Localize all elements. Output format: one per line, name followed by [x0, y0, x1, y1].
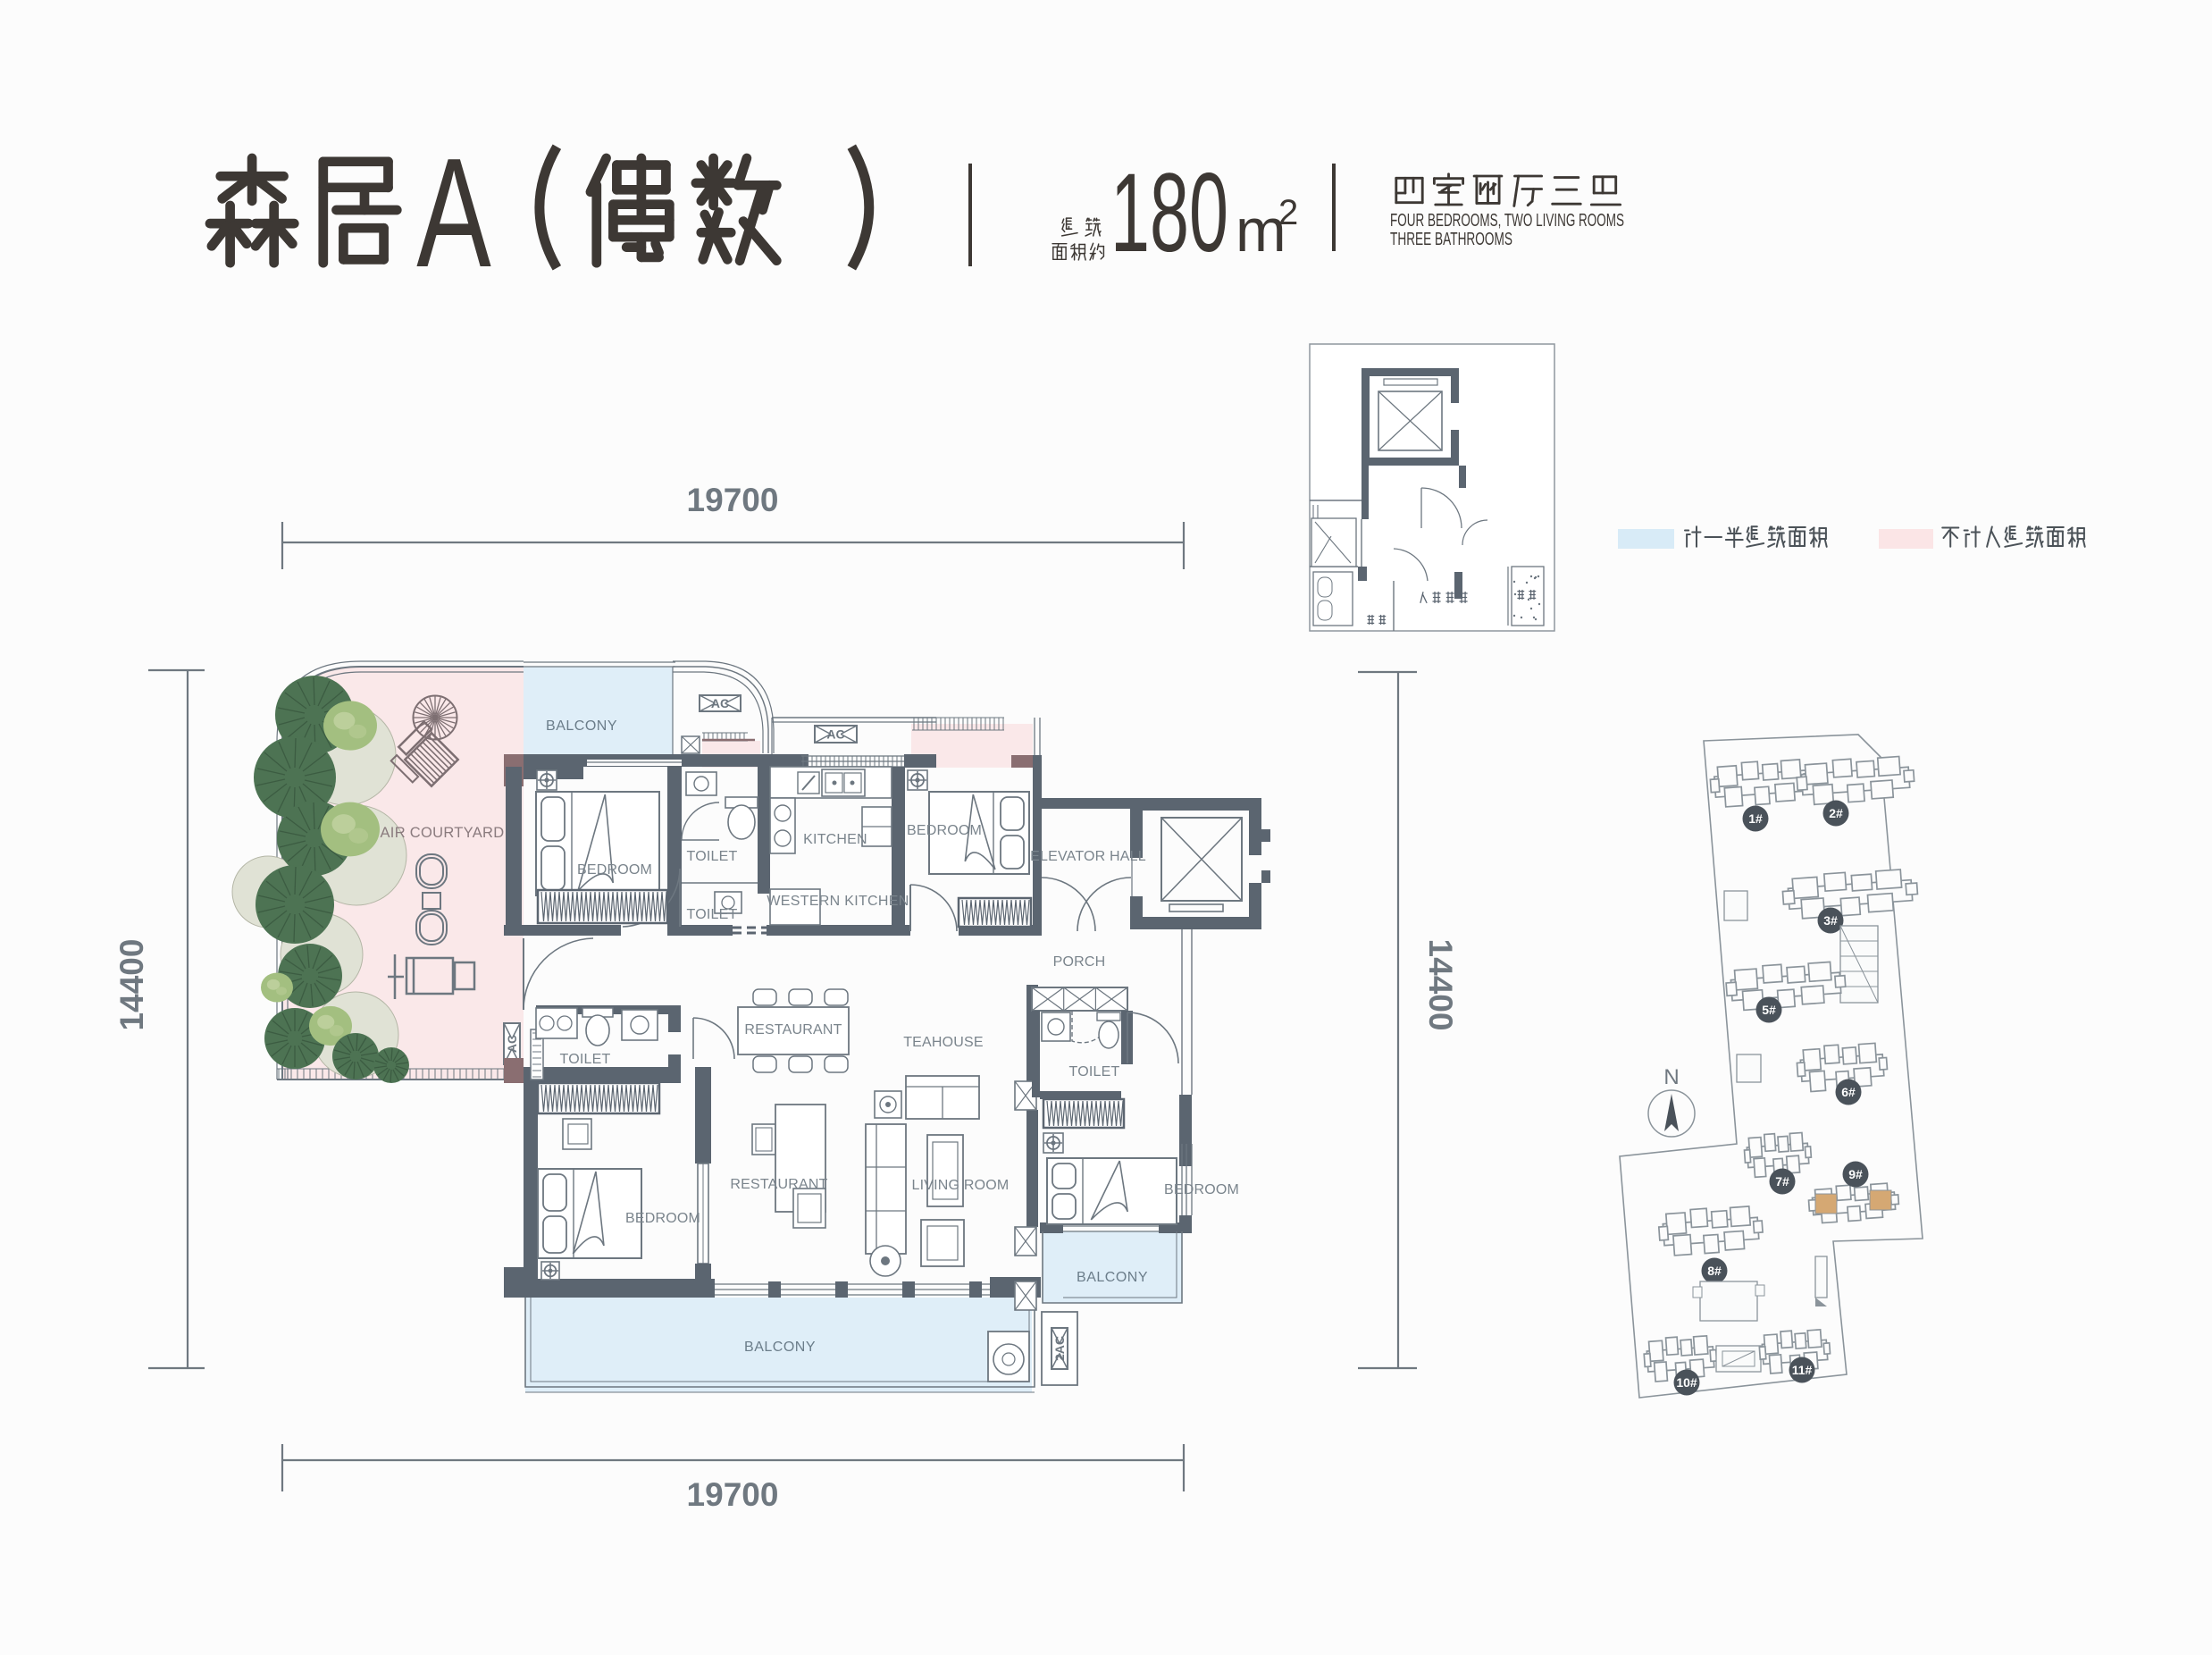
svg-text:AC: AC [505, 1035, 519, 1053]
svg-text:2AC: 2AC [1052, 1336, 1067, 1361]
svg-text:FOUR BEDROOMS, TWO LIVING ROOM: FOUR BEDROOMS, TWO LIVING ROOMS [1390, 211, 1624, 231]
svg-text:5#: 5# [1762, 1003, 1776, 1017]
svg-text:1#: 1# [1748, 811, 1763, 826]
svg-text:AC: AC [711, 696, 729, 710]
svg-text:AIR COURTYARD: AIR COURTYARD [381, 825, 505, 841]
svg-text:6#: 6# [1841, 1085, 1856, 1099]
svg-text:180: 180 [1110, 151, 1228, 275]
svg-text:BEDROOM: BEDROOM [577, 862, 652, 878]
svg-text:RESTAURANT: RESTAURANT [730, 1177, 827, 1192]
svg-text:BEDROOM: BEDROOM [625, 1211, 700, 1226]
svg-text:WESTERN KITCHEN: WESTERN KITCHEN [767, 894, 909, 909]
svg-text:TOILET: TOILET [1069, 1064, 1120, 1080]
svg-text:AC: AC [826, 727, 844, 742]
svg-text:2#: 2# [1829, 806, 1843, 820]
svg-text:A: A [416, 127, 491, 300]
svg-text:KITCHEN: KITCHEN [803, 832, 867, 847]
svg-text:14400: 14400 [1422, 939, 1459, 1031]
svg-text:9#: 9# [1848, 1167, 1863, 1181]
svg-text:11#: 11# [1792, 1363, 1813, 1377]
svg-text:BALCONY: BALCONY [1077, 1270, 1148, 1285]
svg-text:TOILET: TOILET [687, 907, 738, 922]
svg-text:BALCONY: BALCONY [744, 1340, 816, 1355]
svg-text:19700: 19700 [687, 1476, 779, 1513]
svg-text:ELEVATOR HALL: ELEVATOR HALL [1030, 849, 1146, 864]
svg-text:8#: 8# [1707, 1264, 1722, 1278]
svg-text:RESTAURANT: RESTAURANT [744, 1022, 842, 1038]
svg-text:14400: 14400 [113, 939, 150, 1031]
svg-text:THREE BATHROOMS: THREE BATHROOMS [1390, 230, 1512, 249]
svg-text:BEDROOM: BEDROOM [907, 823, 982, 838]
svg-text:19700: 19700 [687, 482, 779, 518]
svg-text:2: 2 [1278, 193, 1298, 232]
svg-text:10#: 10# [1676, 1375, 1697, 1390]
svg-text:3#: 3# [1823, 913, 1838, 928]
svg-text:TEAHOUSE: TEAHOUSE [903, 1035, 984, 1050]
svg-text:LIVING ROOM: LIVING ROOM [912, 1178, 1010, 1193]
svg-text:BALCONY: BALCONY [546, 718, 617, 734]
svg-text:7#: 7# [1775, 1174, 1789, 1189]
svg-text:BEDROOM: BEDROOM [1164, 1182, 1239, 1197]
svg-text:TOILET: TOILET [687, 849, 738, 864]
svg-text:N: N [1663, 1065, 1679, 1089]
svg-text:TOILET: TOILET [560, 1052, 611, 1067]
svg-text:PORCH: PORCH [1053, 954, 1106, 970]
